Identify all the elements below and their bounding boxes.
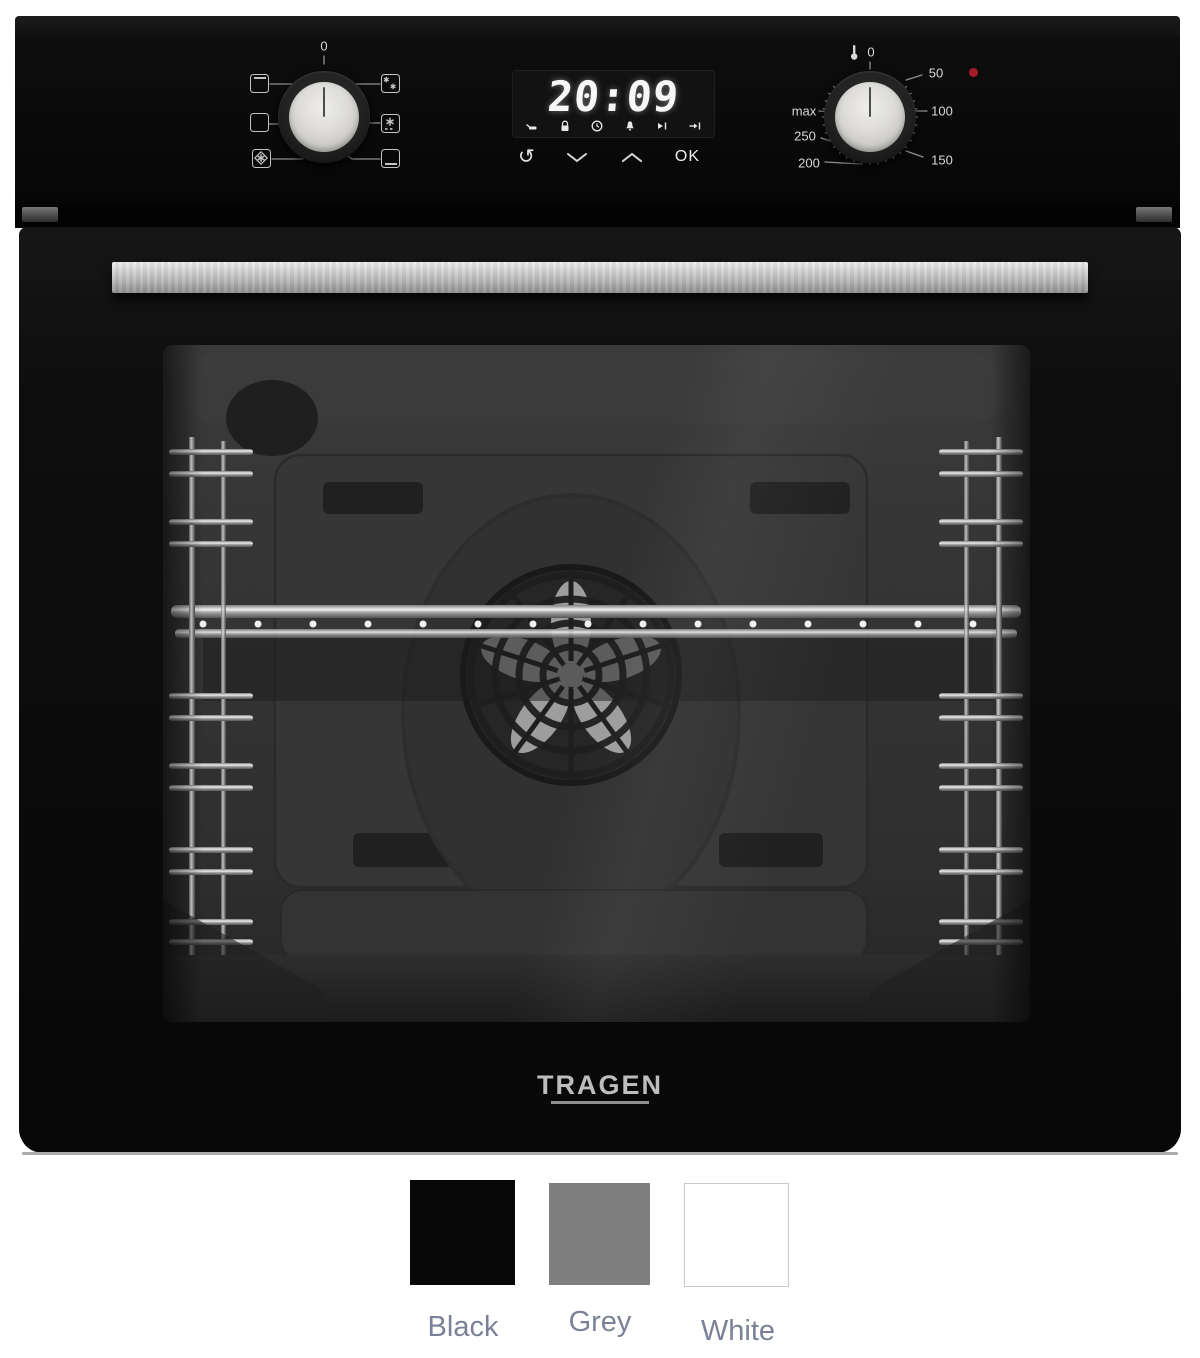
function-knob <box>278 71 370 163</box>
swatch-label-white: White <box>701 1315 775 1348</box>
swatch-label-grey: Grey <box>569 1306 632 1339</box>
right-shelf-supports <box>939 437 1023 965</box>
right-hinge <box>1136 207 1172 222</box>
cavity-floor <box>163 955 1030 1022</box>
swatch-white[interactable] <box>684 1183 789 1287</box>
bell-icon <box>623 119 637 133</box>
grill-element-glyph <box>254 77 266 79</box>
conventional-icon <box>250 113 269 132</box>
oven-lamp <box>226 380 318 456</box>
temp-150-label: 150 <box>931 153 953 168</box>
oven-door: TRAGEN <box>19 227 1181 1153</box>
fan-housing-arch <box>403 495 739 931</box>
temp-100-label: 100 <box>931 104 953 119</box>
grill-icon <box>250 74 269 93</box>
fan-grill-icon <box>252 149 271 168</box>
convection-fan <box>463 567 679 783</box>
left-hinge <box>22 207 58 222</box>
door-handle <box>112 262 1088 293</box>
brand-logo-underline <box>551 1101 649 1104</box>
bottom-element-glyph <box>385 163 397 165</box>
temperature-knob <box>824 71 916 163</box>
wire-shelf <box>171 605 1021 638</box>
chevron-up-icon <box>620 152 644 163</box>
function-dial-zero-label: 0 <box>320 39 327 54</box>
swatch-grey[interactable] <box>549 1183 650 1285</box>
power-indicator-light <box>969 68 978 77</box>
pan-icon <box>525 119 539 133</box>
panel-door-gap <box>15 205 1180 228</box>
door-bottom-trim <box>22 1152 1178 1155</box>
cavity-bottom-sill <box>281 890 867 962</box>
chevron-down-icon <box>565 152 589 163</box>
swatch-label-black: Black <box>428 1311 499 1344</box>
display-status-icons <box>525 119 702 133</box>
lock-icon <box>558 119 572 133</box>
thermometer-icon <box>848 43 860 61</box>
clock-icon <box>590 119 604 133</box>
product-page: 0 <box>0 0 1200 1358</box>
cycle-icon: ↻ <box>518 147 535 167</box>
shelf-highlight-dots <box>200 621 977 628</box>
bottom-heat-icon <box>381 149 400 168</box>
brand-logo-text: TRAGEN <box>537 1072 663 1098</box>
clock-time: 20:09 <box>511 72 716 121</box>
start-time-icon <box>688 119 702 133</box>
swatch-black[interactable] <box>410 1180 515 1285</box>
temp-max-label: max <box>792 104 817 119</box>
temp-200-label: 200 <box>798 156 820 171</box>
left-shelf-supports <box>169 437 253 965</box>
function-knob-cap <box>289 82 359 152</box>
door-window <box>163 345 1030 1022</box>
function-knob-pointer <box>323 87 326 117</box>
temp-zero-label: 0 <box>867 45 874 60</box>
defrost-icon <box>381 114 400 133</box>
oven-window-interior <box>163 345 1030 1022</box>
back-panel-vents <box>323 482 850 867</box>
temperature-knob-pointer <box>869 87 872 117</box>
display-buttons: ↻ OK <box>518 146 700 168</box>
temp-50-label: 50 <box>929 66 943 81</box>
fan-grille <box>471 575 671 775</box>
temperature-knob-cap <box>835 82 905 152</box>
temp-250-label: 250 <box>794 129 816 144</box>
fan-defrost-icon <box>381 74 400 93</box>
cavity-back-panel <box>275 455 867 887</box>
cavity-background <box>163 345 1030 1022</box>
oven-clock-display: 20:09 <box>512 70 715 138</box>
oven-control-panel: 0 <box>15 16 1180 205</box>
brand-logo: TRAGEN <box>537 1072 663 1104</box>
ok-button-label: OK <box>675 148 700 166</box>
end-time-icon <box>655 119 669 133</box>
